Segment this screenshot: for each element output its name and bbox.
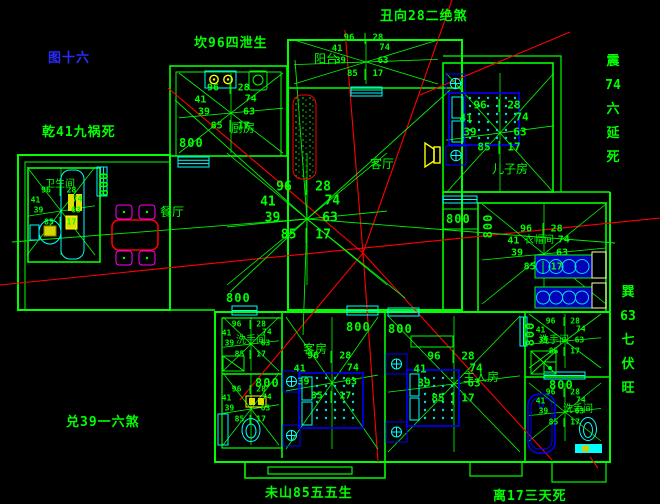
compass-guest-room-top_right: 28	[339, 351, 351, 362]
dimension-label-800: 800	[97, 172, 111, 197]
compass-master-room-upper_left: 41	[413, 363, 426, 376]
compass-guest-room-left: 39	[297, 377, 309, 388]
room-label-dining: 餐厅	[160, 203, 184, 220]
zhen-annotation-segment: 死	[602, 146, 624, 170]
cloakroom-window	[443, 196, 477, 203]
compass-bath-tr-top_left: 96	[546, 316, 556, 325]
wash-window	[232, 306, 257, 315]
compass-balcony-bottom_left: 85	[347, 69, 358, 79]
compass-balcony-right: 63	[378, 56, 389, 66]
xun-annotation: 巽63七伏旺	[617, 281, 639, 401]
compass-balcony-left: 39	[335, 56, 346, 66]
compass-divider	[250, 385, 251, 394]
compass-bath-tr-bottom_left: 85	[549, 347, 559, 356]
compass-divider	[305, 180, 306, 195]
compass-divider	[230, 120, 231, 132]
compass-wash-top-top_right: 28	[256, 319, 266, 328]
xun-annotation-segment: 巽	[617, 281, 639, 305]
compass-guest-room-upper_left: 41	[294, 363, 306, 374]
li-annotation: 离17三天死	[493, 485, 567, 504]
compass-bath-left-upper_left: 41	[31, 195, 41, 204]
compass-wash-top-upper_right: 74	[262, 328, 272, 337]
compass-divider	[365, 69, 366, 80]
compass-house-center-right: 63	[322, 210, 338, 225]
compass-son-room-bottom_left: 85	[477, 141, 490, 154]
compass-kitchen-top_right: 28	[238, 82, 250, 93]
compass-divider	[60, 186, 61, 196]
compass-balcony-top_right: 28	[372, 33, 383, 43]
compass-divider	[331, 351, 332, 363]
compass-guest-room-bottom_left: 85	[311, 391, 323, 402]
compass-son-room-right: 63	[513, 126, 526, 139]
compass-bath-left-right: 63	[71, 206, 81, 215]
kitchen-window	[178, 157, 209, 167]
compass-bath-br-right: 63	[575, 407, 585, 416]
dimension-label-800: 800	[346, 320, 371, 334]
compass-guest-room-upper_right: 74	[347, 362, 359, 373]
compass-bath-br-upper_left: 41	[536, 397, 546, 406]
compass-divider	[230, 82, 231, 94]
compass-cloakroom-bottom_right: 17	[551, 261, 563, 272]
compass-house-center-bottom_right: 17	[315, 228, 331, 243]
compass-divider	[365, 33, 366, 44]
compass-bath-left-top_left: 96	[41, 186, 51, 195]
compass-wash-bottom-upper_left: 41	[222, 394, 232, 403]
compass-divider	[250, 320, 251, 329]
compass-bath-tr-right: 63	[575, 336, 585, 345]
compass-bath-br-upper_right: 74	[576, 396, 586, 405]
dimension-label-800: 800	[481, 214, 495, 239]
room-label-living: 客厅	[370, 155, 394, 172]
compass-guest-room-right: 63	[345, 377, 357, 388]
xun-annotation-segment: 旺	[617, 377, 639, 401]
compass-wash-top-bottom_right: 17	[256, 350, 266, 359]
compass-guest-room-bottom_right: 17	[339, 391, 351, 402]
wei-shan-annotation: 未山85五五生	[265, 482, 353, 501]
compass-divider	[331, 391, 332, 403]
compass-divider	[453, 350, 454, 363]
compass-kitchen-bottom_right: 17	[238, 120, 250, 131]
compass-cloakroom-bottom_left: 85	[524, 261, 536, 272]
compass-bath-br-bottom_left: 85	[549, 418, 559, 427]
compass-son-room-upper_left: 41	[459, 112, 472, 125]
compass-bath-tr-left: 39	[539, 336, 549, 345]
compass-wash-bottom-bottom_right: 17	[256, 415, 266, 424]
compass-master-room-top_left: 96	[427, 350, 440, 363]
compass-bath-left-bottom_left: 85	[44, 217, 54, 226]
compass-divider	[250, 415, 251, 424]
compass-cloakroom-left: 39	[511, 248, 523, 259]
compass-wash-top-upper_left: 41	[222, 329, 232, 338]
door-icon	[425, 143, 440, 167]
compass-guest-room-top_left: 96	[307, 351, 319, 362]
dimension-label-800: 800	[446, 212, 471, 226]
compass-master-room-bottom_right: 17	[461, 392, 474, 405]
floor-plan-canvas: 丑向28二绝煞坎96四泄生图十六乾41九祸死震74六延死巽63七伏旺兑39一六煞…	[0, 0, 660, 504]
compass-divider	[543, 223, 544, 235]
compass-house-center-top_right: 28	[315, 179, 331, 194]
zhen-annotation-segment: 震	[602, 50, 624, 74]
compass-divider	[543, 261, 544, 273]
compass-divider	[564, 388, 565, 397]
compass-divider	[60, 217, 61, 227]
dimension-label-800: 800	[179, 136, 204, 150]
compass-bath-tr-top_right: 28	[570, 316, 580, 325]
compass-cloakroom-top_left: 96	[520, 223, 532, 234]
compass-cloakroom-right: 63	[556, 248, 568, 259]
xun-annotation-segment: 七	[617, 329, 639, 353]
compass-kitchen-right: 63	[243, 107, 255, 118]
compass-master-room-bottom_left: 85	[431, 392, 444, 405]
compass-wash-bottom-right: 63	[261, 404, 271, 413]
dimension-label-800: 800	[388, 322, 413, 336]
dimension-label-800: 800	[226, 291, 251, 305]
nightstand-lamp-icon	[386, 354, 407, 442]
compass-bath-left-upper_right: 74	[73, 195, 83, 204]
compass-kitchen-top_left: 96	[207, 82, 219, 93]
zhen-annotation-segment: 延	[602, 122, 624, 146]
compass-bath-tr-upper_right: 74	[576, 325, 586, 334]
compass-house-center-upper_left: 41	[260, 194, 276, 209]
compass-son-room-left: 39	[463, 126, 476, 139]
guest-window	[347, 306, 378, 315]
compass-house-center-top_left: 96	[276, 179, 292, 194]
xun-annotation-segment: 伏	[617, 353, 639, 377]
compass-master-room-upper_right: 74	[469, 362, 482, 375]
compass-cloakroom-upper_left: 41	[507, 235, 519, 246]
zhen-annotation-segment: 六	[602, 98, 624, 122]
compass-wash-bottom-bottom_left: 85	[235, 415, 245, 424]
dining-table-icon	[112, 205, 158, 265]
kan-annotation: 坎96四泄生	[194, 32, 268, 51]
compass-wash-bottom-upper_right: 74	[262, 393, 272, 402]
compass-wash-top-left: 39	[225, 339, 235, 348]
dui-annotation: 兑39一六煞	[66, 411, 140, 430]
compass-bath-left-bottom_right: 17	[67, 217, 77, 226]
compass-bath-tr-bottom_right: 17	[570, 347, 580, 356]
compass-bath-left-top_right: 28	[67, 186, 77, 195]
compass-balcony-upper_left: 41	[332, 44, 343, 54]
compass-house-center-upper_right: 74	[324, 193, 340, 208]
compass-kitchen-upper_left: 41	[194, 94, 206, 105]
compass-wash-bottom-left: 39	[225, 404, 235, 413]
compass-wash-top-bottom_left: 85	[235, 350, 245, 359]
compass-wash-top-top_left: 96	[232, 319, 242, 328]
compass-wash-top-right: 63	[261, 339, 271, 348]
compass-house-center-bottom_left: 85	[281, 228, 297, 243]
compass-son-room-top_left: 96	[473, 99, 486, 112]
figure-number: 图十六	[48, 47, 90, 66]
compass-divider	[564, 347, 565, 356]
compass-cloakroom-top_right: 28	[551, 223, 563, 234]
compass-divider	[499, 99, 500, 112]
compass-master-room-right: 63	[467, 377, 480, 390]
compass-divider	[453, 392, 454, 405]
compass-bath-left-left: 39	[34, 206, 44, 215]
chou-xiang-annotation: 丑向28二绝煞	[380, 5, 468, 24]
compass-master-room-left: 39	[417, 377, 430, 390]
compass-divider	[250, 350, 251, 359]
compass-balcony-top_left: 96	[344, 33, 355, 43]
compass-wash-bottom-top_right: 28	[256, 384, 266, 393]
compass-son-room-upper_right: 74	[515, 111, 528, 124]
compass-bath-br-top_right: 28	[570, 387, 580, 396]
qian-annotation: 乾41九祸死	[42, 121, 116, 140]
compass-son-room-bottom_right: 17	[507, 141, 520, 154]
xun-annotation-segment: 63	[617, 305, 639, 329]
wardrobe-icon	[535, 252, 606, 308]
zhen-annotation: 震74六延死	[602, 50, 624, 170]
compass-wash-bottom-top_left: 96	[232, 384, 242, 393]
compass-cloakroom-upper_right: 74	[558, 234, 570, 245]
compass-kitchen-bottom_left: 85	[211, 120, 223, 131]
zhen-annotation-segment: 74	[602, 74, 624, 98]
compass-divider	[564, 317, 565, 326]
compass-bath-br-left: 39	[539, 407, 549, 416]
compass-kitchen-upper_right: 74	[245, 93, 257, 104]
compass-divider	[564, 418, 565, 427]
room-label-son: 儿子房	[492, 160, 528, 177]
compass-divider	[305, 228, 306, 243]
compass-divider	[499, 141, 500, 154]
compass-balcony-bottom_right: 17	[372, 69, 383, 79]
compass-bath-tr-upper_left: 41	[536, 326, 546, 335]
compass-balcony-upper_right: 74	[379, 43, 390, 53]
compass-bath-br-bottom_right: 17	[570, 418, 580, 427]
plant-strip-icon	[293, 95, 316, 179]
compass-house-center-left: 39	[265, 210, 281, 225]
compass-bath-br-top_left: 96	[546, 387, 556, 396]
compass-kitchen-left: 39	[198, 107, 210, 118]
